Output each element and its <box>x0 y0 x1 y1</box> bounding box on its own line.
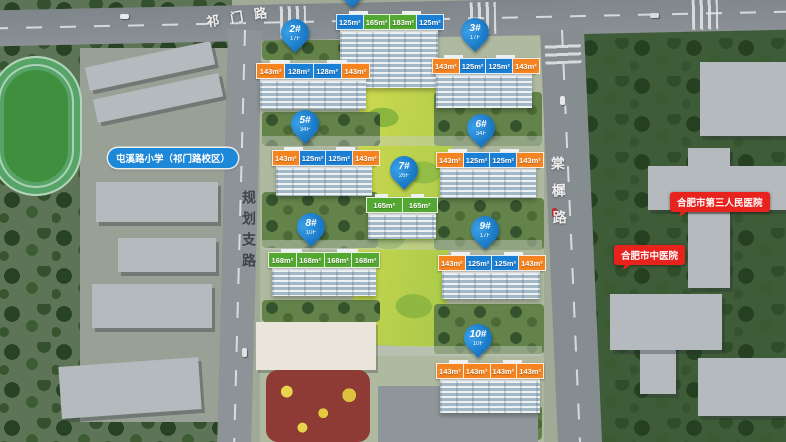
stadium-field <box>4 70 68 182</box>
road-name-right: 棠樨路 <box>548 156 571 238</box>
hospital-building <box>610 294 722 350</box>
building-number: 10# <box>470 330 487 340</box>
unit-area: 143m² <box>513 58 540 74</box>
pin-content: 3# 17F <box>461 18 489 46</box>
building-pin-5[interactable]: 5# 34F <box>285 104 325 144</box>
unit-area: 143m² <box>517 363 544 379</box>
unit-area: 125m² <box>417 14 444 30</box>
building-pin-6[interactable]: 6# 34F <box>461 108 501 148</box>
building-number: 5# <box>299 116 310 126</box>
building-number: 3# <box>469 24 480 34</box>
school-building <box>96 182 218 222</box>
kindergarten-building <box>256 322 376 370</box>
pin-content: 7# 26F <box>390 156 418 184</box>
building-5-unit-bar: 143m² 125m² 125m² 143m² <box>272 150 376 166</box>
unit-area: 143m² <box>256 63 285 79</box>
unit-area: 125m² <box>460 58 487 74</box>
building-10-unit-bar: 143m² 143m² 143m² 143m² <box>436 363 544 379</box>
neighbour-building <box>698 358 786 416</box>
unit-area: 125m² <box>492 255 519 271</box>
unit-area: 143m² <box>342 63 370 79</box>
pin-content: 10# 10F <box>464 324 492 352</box>
building-floors: 10F <box>306 230 316 236</box>
unit-area: 125m² <box>490 152 517 168</box>
unit-area: 168m² <box>297 252 325 268</box>
tower-5 <box>276 166 372 196</box>
hospital-label-2: 合肥市中医院 <box>614 245 685 265</box>
tower-8 <box>272 268 376 296</box>
building-floors: 17F <box>290 36 300 42</box>
unit-area: 143m² <box>436 152 464 168</box>
hedge <box>262 300 380 322</box>
building-number: 6# <box>475 120 486 130</box>
car <box>650 13 659 18</box>
building-pin-8[interactable]: 8# 10F <box>291 207 331 247</box>
car <box>560 96 565 105</box>
school-building <box>92 284 212 328</box>
tower-3 <box>436 74 532 108</box>
unit-area: 143m² <box>464 363 491 379</box>
pin-content: 5# 34F <box>291 110 319 138</box>
unit-area: 143m² <box>519 255 546 271</box>
tower-7 <box>368 213 436 239</box>
building-number: 2# <box>289 25 300 35</box>
unit-area: 143m² <box>517 152 544 168</box>
building-top-unit-bar: 125m² 165m² 183m² 125m² <box>336 14 442 30</box>
building-number: 9# <box>479 222 490 232</box>
tower-2 <box>260 79 366 109</box>
unit-area: 128m² <box>314 63 342 79</box>
building-floors: 26F <box>399 173 409 179</box>
car <box>242 348 247 357</box>
crosswalk <box>692 0 719 30</box>
unit-area: 143m² <box>272 150 300 166</box>
building-pin-9[interactable]: 9# 17F <box>465 210 505 250</box>
unit-area: 165m² <box>366 197 403 213</box>
building-number: 8# <box>305 219 316 229</box>
building-9-unit-bar: 143m² 125m² 125m² 143m² <box>438 255 544 271</box>
unit-area: 165m² <box>403 197 439 213</box>
building-floors: 34F <box>300 127 310 133</box>
unit-area: 125m² <box>326 150 353 166</box>
unit-area: 168m² <box>352 252 380 268</box>
unit-area: 143m² <box>491 363 518 379</box>
building-floors: 10F <box>473 341 483 347</box>
tower-9 <box>442 271 540 299</box>
building-2-unit-bar: 143m² 128m² 128m² 143m² <box>256 63 370 79</box>
building-8-unit-bar: 168m² 168m² 168m² 168m² <box>268 252 380 268</box>
crosswalk <box>545 41 582 65</box>
building-6-unit-bar: 143m² 125m² 125m² 143m² <box>436 152 540 168</box>
pin-content <box>338 0 366 2</box>
unit-area: 125m² <box>300 150 327 166</box>
school-label: 屯溪路小学（祁门路校区） <box>108 148 238 168</box>
pin-content: 2# 17F <box>281 19 309 47</box>
tower-10 <box>440 379 540 413</box>
road-name-left: 规划支路 <box>239 190 259 274</box>
internal-road <box>262 240 542 250</box>
hospital-label-1: 合肥市第三人民医院 <box>670 192 770 212</box>
residential-site-plan: 祁门路 规划支路 棠樨路 125m² 165m² 183m² 125m² 143… <box>0 0 786 442</box>
building-3-unit-bar: 143m² 125m² 125m² 143m² <box>432 58 536 74</box>
building-pin-10[interactable]: 10# 10F <box>458 318 498 358</box>
building-number: 7# <box>398 162 409 172</box>
tower-6 <box>440 168 536 198</box>
unit-area: 143m² <box>432 58 460 74</box>
building-floors: 17F <box>480 233 490 239</box>
kindergarten-playground <box>266 370 370 442</box>
unit-area: 125m² <box>336 14 364 30</box>
unit-area: 143m² <box>438 255 466 271</box>
pin-content: 6# 34F <box>467 114 495 142</box>
unit-area: 125m² <box>486 58 513 74</box>
pin-content: 9# 17F <box>471 216 499 244</box>
unit-area: 165m² <box>364 14 391 30</box>
building-7-unit-bar: 165m² 165m² <box>366 197 438 213</box>
building-pin-3[interactable]: 3# 17F <box>455 12 495 52</box>
building-pin-7[interactable]: 7# 26F <box>384 150 424 190</box>
unit-area: 143m² <box>353 150 380 166</box>
unit-area: 168m² <box>325 252 353 268</box>
pin-content: 8# 10F <box>297 213 325 241</box>
unit-area: 125m² <box>464 152 491 168</box>
unit-area: 128m² <box>285 63 313 79</box>
unit-area: 168m² <box>268 252 297 268</box>
school-building <box>118 238 216 272</box>
stadium-track <box>0 56 82 196</box>
building-floors: 34F <box>476 131 486 137</box>
unit-area: 143m² <box>436 363 464 379</box>
unit-area: 183m² <box>390 14 417 30</box>
neighbour-building <box>700 62 786 136</box>
neighbour-building <box>58 357 201 419</box>
car <box>120 14 129 19</box>
building-pin-2[interactable]: 2# 17F <box>275 13 315 53</box>
unit-area: 125m² <box>466 255 493 271</box>
building-floors: 17F <box>470 35 480 41</box>
